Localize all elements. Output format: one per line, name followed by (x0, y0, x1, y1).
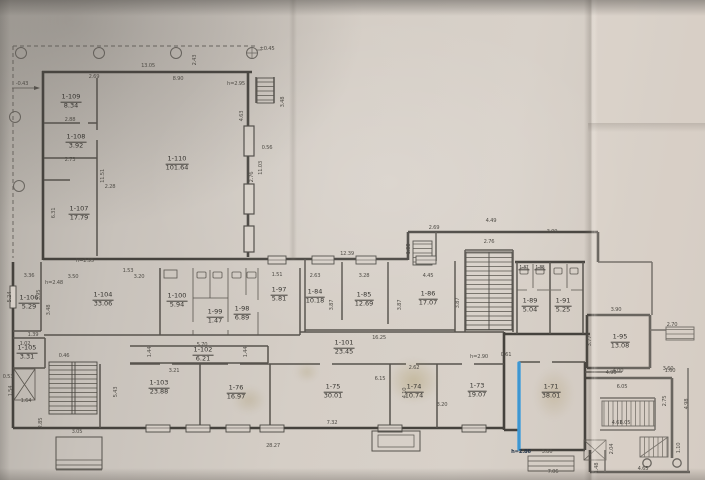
detail-lines (12, 86, 668, 471)
dashed-outline (10, 46, 263, 258)
paper-crease-vertical (289, 0, 297, 260)
paper-fold-vertical (584, 0, 598, 480)
paper-fold-horizontal (588, 123, 705, 132)
paper-stain (232, 386, 266, 414)
paper-stain (295, 362, 319, 382)
porches (56, 431, 574, 471)
paper-stain (534, 368, 574, 420)
paper-right-lighter (594, 0, 705, 480)
floor-plan-photo: 1-1098.341-1083.921-10717.791-110101.641… (0, 0, 705, 480)
paper-stain (388, 358, 440, 404)
pilasters (244, 126, 254, 252)
